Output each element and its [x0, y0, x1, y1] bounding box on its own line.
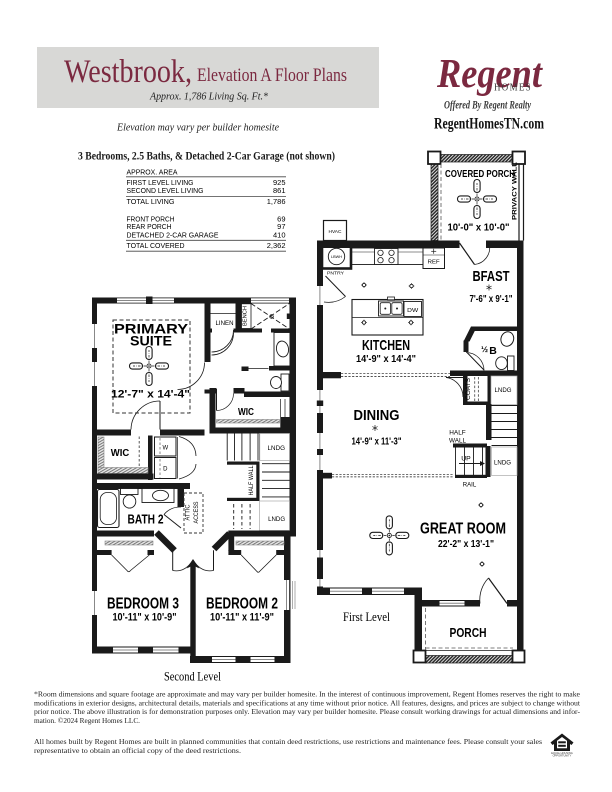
svg-text:GREAT ROOM: GREAT ROOM — [420, 521, 506, 538]
svg-text:BENCH: BENCH — [243, 306, 249, 326]
svg-text:10'-11" x 10'-9": 10'-11" x 10'-9" — [113, 612, 177, 624]
svg-text:22'-2" x 13'-1": 22'-2" x 13'-1" — [438, 538, 494, 550]
svg-text:LNDG: LNDG — [268, 516, 285, 523]
svg-text:10'-0" x 10'-0": 10'-0" x 10'-0" — [448, 222, 510, 234]
svg-text:APPROX. AREA: APPROX. AREA — [127, 168, 178, 177]
svg-text:representative to obtain an of: representative to obtain an official cop… — [34, 746, 241, 755]
svg-text:Westbrook,: Westbrook, — [64, 54, 192, 90]
svg-text:COVERED PORCH: COVERED PORCH — [445, 169, 515, 180]
svg-text:TOTAL LIVING: TOTAL LIVING — [127, 197, 175, 206]
svg-text:BFAST: BFAST — [473, 268, 510, 285]
svg-text:10'-11" x 11'-9": 10'-11" x 11'-9" — [210, 612, 274, 624]
svg-text:BEDROOM 3: BEDROOM 3 — [107, 596, 179, 613]
svg-text:DETACHED 2-CAR GARAGE: DETACHED 2-CAR GARAGE — [127, 230, 219, 239]
svg-text:LINEN: LINEN — [216, 320, 234, 327]
svg-text:WIC: WIC — [238, 407, 254, 418]
svg-text:Elevation may vary per builder: Elevation may vary per builder homesite — [116, 123, 279, 134]
svg-text:LNDG: LNDG — [268, 445, 286, 452]
svg-text:All homes built by Regent Home: All homes built by Regent Homes are buil… — [34, 737, 542, 746]
svg-text:TOTAL COVERED: TOTAL COVERED — [127, 241, 186, 250]
svg-text:B: B — [489, 345, 497, 357]
svg-text:LBWH: LBWH — [331, 255, 342, 259]
svg-text:14'-9" x 11'-3": 14'-9" x 11'-3" — [352, 436, 402, 448]
svg-text:BATH 2: BATH 2 — [128, 513, 164, 527]
svg-text:BEDROOM 2: BEDROOM 2 — [206, 596, 278, 613]
svg-text:HVAC: HVAC — [329, 229, 343, 235]
svg-text:SECOND LEVEL LIVING: SECOND LEVEL LIVING — [127, 186, 204, 195]
svg-text:1,786: 1,786 — [267, 197, 286, 206]
svg-text:3 Bedrooms, 2.5 Baths, & Detac: 3 Bedrooms, 2.5 Baths, & Detached 2-Car … — [78, 151, 335, 163]
svg-text:861: 861 — [273, 186, 286, 195]
svg-text:DW: DW — [407, 308, 419, 314]
svg-text:PORCH: PORCH — [450, 625, 487, 640]
svg-text:Second Level: Second Level — [164, 669, 221, 684]
svg-text:ATTIC: ATTIC — [186, 504, 192, 521]
svg-text:PRIVACY WALL: PRIVACY WALL — [513, 162, 519, 220]
svg-text:7'-6" x 9'-1": 7'-6" x 9'-1" — [470, 293, 513, 305]
svg-text:OPPORTUNITY: OPPORTUNITY — [553, 754, 572, 758]
svg-text:*Room dimensions and square fo: *Room dimensions and square footage are … — [34, 690, 580, 699]
svg-text:HOMES: HOMES — [494, 83, 532, 94]
svg-text:LNDG: LNDG — [494, 460, 511, 467]
svg-text:W: W — [162, 446, 168, 452]
svg-text:14'-9" x 14'-4": 14'-9" x 14'-4" — [356, 353, 416, 365]
svg-text:WALL: WALL — [449, 438, 466, 445]
svg-text:UP: UP — [461, 456, 471, 463]
svg-text:PNTRY: PNTRY — [327, 271, 345, 277]
svg-text:HALF WALL: HALF WALL — [248, 465, 255, 495]
svg-text:REF: REF — [428, 260, 441, 266]
svg-text:SUITE: SUITE — [130, 333, 172, 349]
svg-text:modifications in exterior des: modifications in exterior designs, archi… — [34, 698, 580, 707]
svg-text:ACCESS: ACCESS — [194, 502, 200, 524]
svg-text:RegentHomesTN.com: RegentHomesTN.com — [434, 116, 544, 133]
svg-text:HALF: HALF — [449, 430, 466, 437]
svg-text:prior notice. The above illust: prior notice. The above illustration is … — [34, 707, 581, 716]
svg-text:Approx. 1,786 Living Sq. Ft.*: Approx. 1,786 Living Sq. Ft.* — [149, 91, 268, 103]
svg-text:COATS: COATS — [466, 378, 472, 400]
svg-text:D: D — [163, 467, 168, 473]
svg-text:KITCHEN: KITCHEN — [362, 337, 410, 354]
svg-text:RAIL: RAIL — [463, 482, 477, 489]
svg-text:½: ½ — [481, 344, 488, 354]
svg-text:Offered By Regent Realty: Offered By Regent Realty — [444, 100, 532, 112]
svg-text:DINING: DINING — [354, 407, 400, 424]
svg-text:12'-7" x 14'-4": 12'-7" x 14'-4" — [111, 389, 190, 401]
svg-text:First Level: First Level — [343, 609, 390, 624]
svg-text:410: 410 — [273, 230, 286, 239]
svg-text:2,362: 2,362 — [267, 241, 286, 250]
svg-text:mation. ©2024 Regent Homes LLC: mation. ©2024 Regent Homes LLC. — [34, 716, 140, 725]
svg-text:Elevation A Floor Plans: Elevation A Floor Plans — [197, 65, 347, 86]
svg-text:LNDG: LNDG — [495, 387, 512, 394]
svg-text:WIC: WIC — [111, 447, 130, 459]
